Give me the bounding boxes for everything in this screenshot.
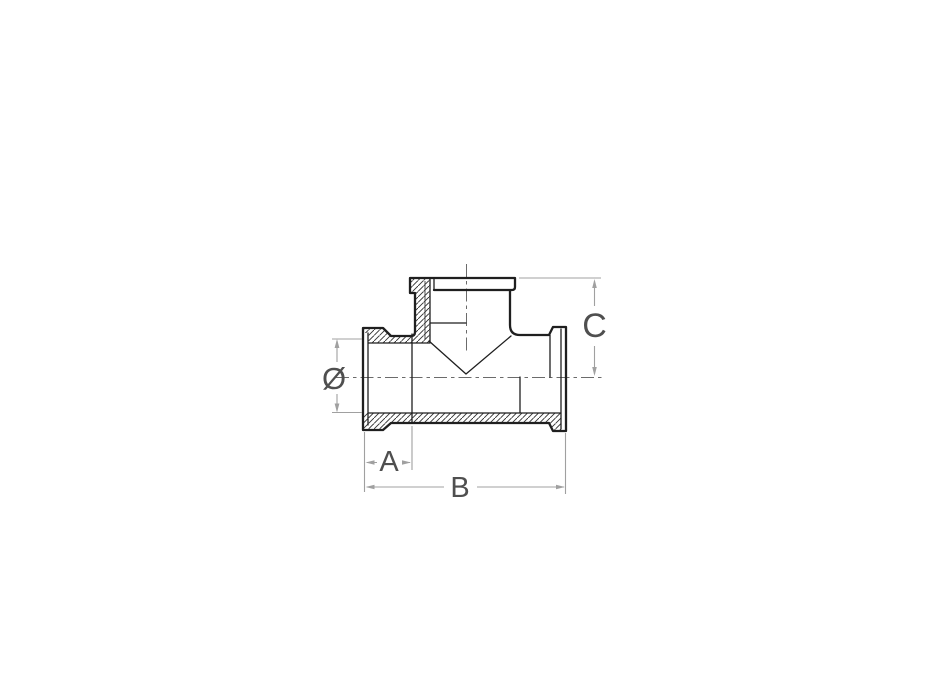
dimensions: Ø A B — [322, 278, 607, 504]
tee-fitting-drawing: Ø A B — [0, 0, 950, 700]
inner-lines — [368, 278, 561, 429]
technical-drawing-figure: Ø A B — [0, 0, 950, 700]
diameter-symbol: Ø — [322, 361, 346, 396]
dimension-diameter: Ø — [322, 339, 362, 413]
centerlines — [336, 264, 602, 378]
arrow-down-icon — [592, 367, 597, 376]
tee-fitting-body — [363, 278, 566, 431]
arrow-right-icon — [556, 485, 565, 490]
arrow-down-icon — [335, 404, 340, 413]
page-canvas: Ø A B — [0, 0, 950, 700]
dimension-a: A — [365, 426, 413, 492]
arrow-up-icon — [592, 279, 597, 288]
arrow-right-icon — [402, 460, 411, 465]
arrow-left-icon — [366, 460, 375, 465]
outer-contour — [363, 278, 566, 431]
arrow-up-icon — [335, 339, 340, 348]
dim-label-a: A — [379, 446, 399, 478]
hatch-top-left-wall — [363, 278, 430, 343]
dim-label-b: B — [450, 472, 469, 504]
dim-label-c: C — [582, 307, 607, 345]
thread-relief-lines — [429, 336, 511, 374]
section-hatching — [363, 278, 561, 431]
arrow-left-icon — [366, 485, 375, 490]
